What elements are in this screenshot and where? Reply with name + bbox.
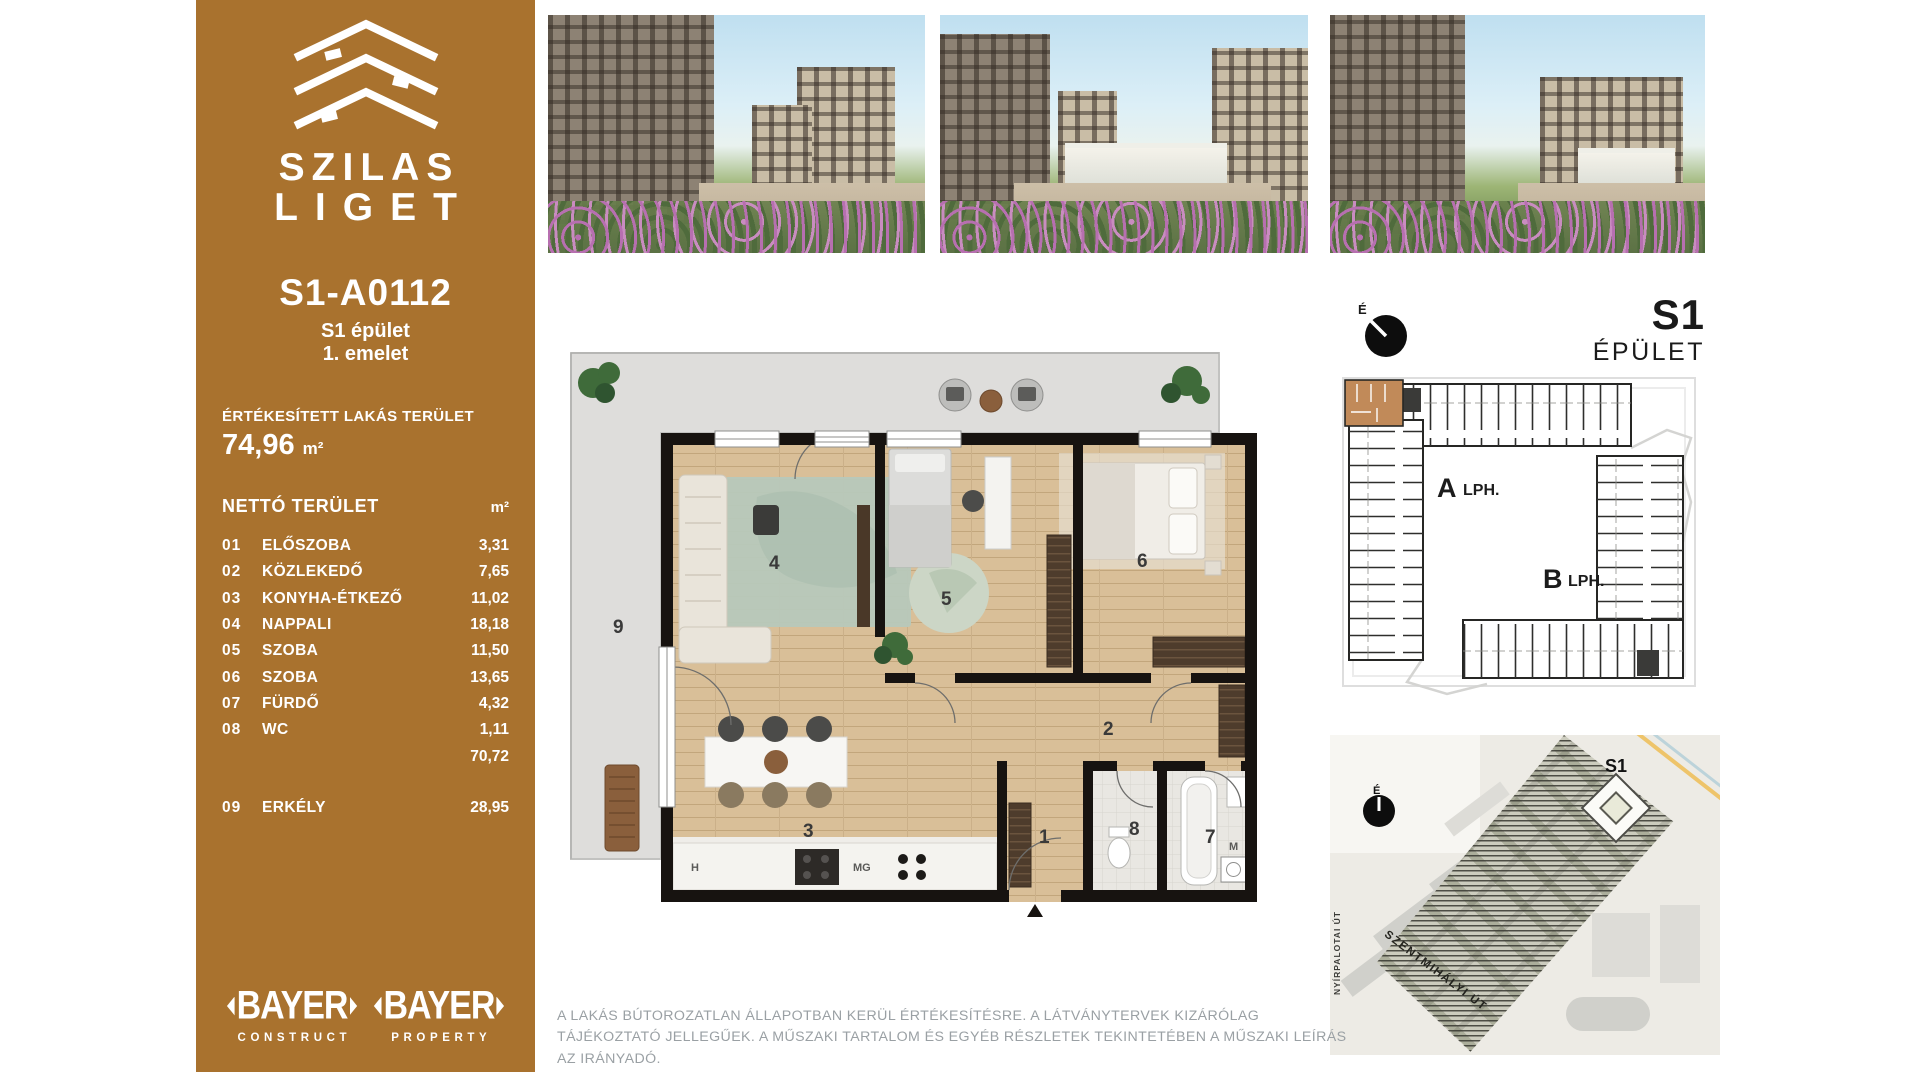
bayer-construct-logo: BAYER CONSTRUCT [226, 990, 359, 1044]
map-roundabout [1566, 997, 1650, 1031]
wardrobe-icon [1047, 535, 1071, 667]
map-building [1592, 913, 1650, 977]
table-row: 04NAPPALI18,18 [222, 612, 509, 638]
stair-a-label: A [1437, 473, 1457, 503]
fridge-label: H [691, 862, 699, 874]
table-row: 03KONYHA-ÉTKEZŐ11,02 [222, 585, 509, 611]
building-code-label: ÉPÜLET [1490, 338, 1705, 367]
apartment-subtitle: S1 épület 1. emelet [222, 320, 509, 366]
balcony-row: 09ERKÉLY28,95 [222, 795, 509, 821]
wardrobe-icon [1219, 685, 1245, 757]
datasheet-page: SZILAS LIGET S1-A0112 S1 épület 1. emele… [0, 0, 1920, 1080]
building-code: S1 [1490, 294, 1705, 336]
net-total-row: 70,72 [222, 744, 509, 770]
logo-wing-icon [496, 997, 505, 1016]
room-label-4: 4 [769, 553, 780, 574]
building-name: S1 épület [222, 320, 509, 343]
brand-logo-icon [222, 16, 509, 138]
sold-area-unit: m² [303, 439, 324, 458]
entry-arrow-icon [1027, 904, 1043, 917]
bayer-property-logo: BAYER PROPERTY [373, 990, 506, 1044]
stair-b-sub: LPH. [1568, 573, 1604, 590]
stair-core [1401, 388, 1421, 412]
sold-area-value: 74,96 m² [222, 429, 509, 462]
brand-line1: SZILAS [222, 148, 509, 188]
table-row: 02KÖZLEKEDŐ7,65 [222, 559, 509, 585]
double-bed-icon [1077, 455, 1221, 575]
disclaimer-text: A LAKÁS BÚTOROZATLAN ÁLLAPOTBAN KERÜL ÉR… [557, 1006, 1365, 1070]
render-photo-2 [940, 15, 1308, 253]
room-label-6: 6 [1137, 551, 1148, 572]
single-bed-icon [889, 449, 951, 567]
company-logos: BAYER CONSTRUCT BAYER PROPERTY [196, 990, 535, 1044]
street-label-nyirpalotai: NYÍRPALOTAI ÚT [1332, 911, 1342, 995]
map-building [1330, 735, 1480, 853]
room-table: 01ELŐSZOBA3,31 02KÖZLEKEDŐ7,65 03KONYHA-… [222, 533, 509, 822]
wardrobe-icon [1153, 637, 1245, 667]
kitchen-counter-icon [673, 843, 997, 890]
north-label: É [1358, 302, 1367, 317]
sidebar: SZILAS LIGET S1-A0112 S1 épület 1. emele… [196, 0, 535, 1072]
logo-wing-icon [373, 997, 382, 1016]
room-label-7: 7 [1205, 827, 1216, 848]
render-photo-1 [548, 15, 925, 253]
stair-b-label: B [1543, 564, 1563, 594]
table-row: 01ELŐSZOBA3,31 [222, 533, 509, 559]
lounger-icon [605, 765, 639, 851]
logo-wing-icon [226, 997, 235, 1016]
washer-label: M [1229, 841, 1238, 853]
north-compass-icon: É [1352, 300, 1412, 360]
floor-key-plan: A LPH. B LPH. [1337, 372, 1707, 697]
room-label-9: 9 [613, 617, 624, 638]
apartment-code: S1-A0112 [222, 272, 509, 314]
desk-icon [985, 457, 1011, 549]
table-row: 07FÜRDŐ4,32 [222, 691, 509, 717]
stair-core [1637, 650, 1659, 676]
room-label-1: 1 [1039, 827, 1050, 848]
toilet-icon [1108, 827, 1130, 868]
floor-plan: 9 4 5 6 3 1 2 8 7 H MG M [557, 337, 1297, 917]
wardrobe-icon [1009, 803, 1031, 887]
logo-wing-icon [350, 997, 359, 1016]
net-area-header: NETTÓ TERÜLET m² [222, 496, 509, 517]
floor-name: 1. emelet [222, 343, 509, 366]
room-label-8: 8 [1129, 819, 1140, 840]
room-label-5: 5 [941, 589, 952, 610]
building-code-block: S1 ÉPÜLET [1490, 294, 1705, 367]
room-label-2: 2 [1103, 719, 1114, 740]
stair-a-sub: LPH. [1463, 482, 1499, 499]
net-area-label: NETTÓ TERÜLET [222, 496, 379, 517]
dining-island-icon [705, 716, 847, 808]
tv-unit-icon [857, 505, 870, 627]
sold-area-block: ÉRTÉKESÍTETT LAKÁS TERÜLET 74,96 m² [222, 408, 509, 462]
room-label-3: 3 [803, 821, 814, 842]
site-map: S1 É NYÍRPALOTAI ÚT SZENTMIHÁLYI ÚT [1330, 735, 1720, 1055]
s1-map-tag: S1 [1605, 756, 1627, 777]
net-total-value: 70,72 [470, 748, 509, 766]
sold-area-label: ÉRTÉKESÍTETT LAKÁS TERÜLET [222, 408, 509, 425]
map-compass-icon: É [1357, 783, 1403, 829]
table-row: 08WC1,11 [222, 717, 509, 743]
keyplan-wings [1349, 384, 1683, 678]
map-building [1660, 905, 1700, 983]
table-row: 05SZOBA11,50 [222, 638, 509, 664]
washing-machine-icon [1221, 857, 1246, 882]
desk-chair-icon [962, 490, 984, 512]
render-photo-3 [1330, 15, 1705, 253]
table-row: 06SZOBA13,65 [222, 664, 509, 690]
dishwasher-label: MG [853, 862, 871, 874]
brand-title: SZILAS LIGET [222, 148, 509, 228]
highlighted-unit [1345, 380, 1403, 426]
net-area-unit: m² [491, 499, 509, 516]
brand-line2: LIGET [222, 188, 509, 228]
